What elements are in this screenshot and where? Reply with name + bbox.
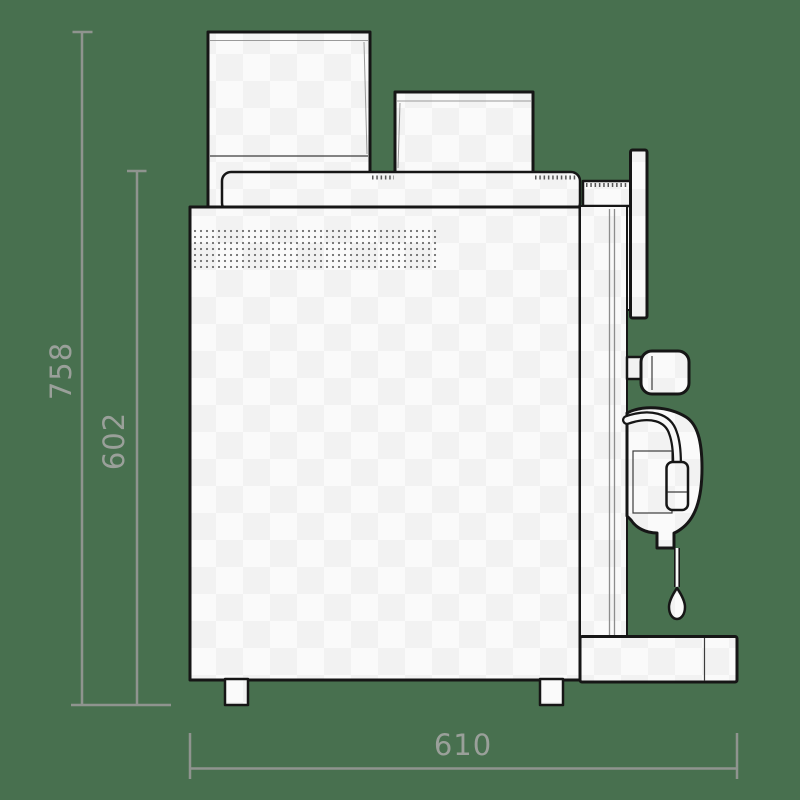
machine-drawing (190, 32, 737, 705)
dispenser-nozzle (667, 462, 689, 510)
dispenser-column (580, 206, 627, 637)
rear-rail (631, 150, 648, 318)
dim-width-label: 610 (434, 728, 492, 762)
ventilation-grid (194, 228, 440, 268)
steam-knob (641, 351, 689, 394)
rail-bracket (583, 181, 631, 206)
wand-tip (669, 588, 685, 619)
dispenser-head (627, 408, 702, 548)
dim-total-height-label: 758 (44, 342, 78, 400)
machine-dimension-diagram: 758 602 610 (0, 0, 800, 800)
dim-body-height-label: 602 (97, 412, 131, 470)
foot-left (225, 679, 248, 705)
drip-tray-base (580, 637, 737, 683)
technical-drawing-canvas: 758 602 610 (0, 0, 800, 800)
machine-body (190, 207, 580, 680)
foot-right (540, 679, 563, 705)
